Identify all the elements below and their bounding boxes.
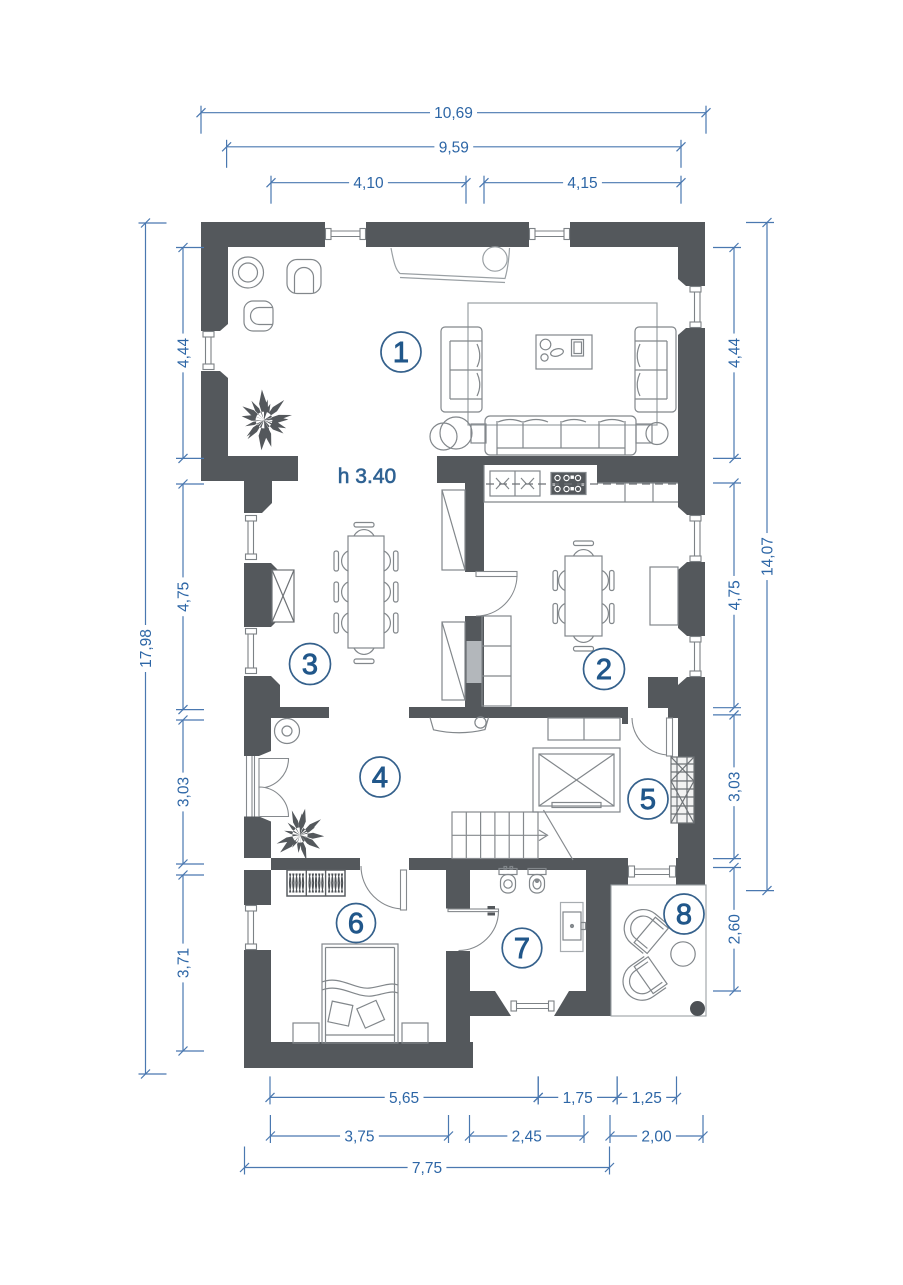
svg-text:5,65: 5,65 bbox=[389, 1090, 419, 1107]
svg-text:3,75: 3,75 bbox=[344, 1129, 374, 1146]
svg-text:4: 4 bbox=[372, 762, 388, 794]
svg-text:3,71: 3,71 bbox=[176, 948, 193, 978]
svg-text:5: 5 bbox=[640, 784, 656, 816]
svg-text:3,03: 3,03 bbox=[176, 777, 193, 807]
svg-text:h 3.40: h 3.40 bbox=[338, 465, 396, 488]
svg-text:1,25: 1,25 bbox=[632, 1090, 662, 1107]
svg-text:4,10: 4,10 bbox=[353, 175, 384, 192]
svg-text:2,00: 2,00 bbox=[641, 1129, 672, 1146]
svg-text:3,03: 3,03 bbox=[727, 772, 744, 802]
svg-text:6: 6 bbox=[348, 908, 364, 940]
svg-text:4,75: 4,75 bbox=[727, 580, 744, 610]
svg-text:4,15: 4,15 bbox=[567, 175, 597, 192]
svg-text:4,44: 4,44 bbox=[727, 337, 744, 368]
svg-text:2: 2 bbox=[596, 654, 612, 686]
svg-text:1,75: 1,75 bbox=[563, 1090, 593, 1107]
svg-text:17,98: 17,98 bbox=[138, 629, 155, 668]
svg-text:14,07: 14,07 bbox=[760, 537, 777, 576]
svg-text:4,75: 4,75 bbox=[176, 582, 193, 612]
svg-text:8: 8 bbox=[676, 899, 692, 931]
svg-text:9,59: 9,59 bbox=[439, 139, 469, 156]
svg-text:7,75: 7,75 bbox=[412, 1160, 442, 1177]
svg-text:10,69: 10,69 bbox=[434, 105, 473, 122]
svg-text:2,45: 2,45 bbox=[512, 1129, 542, 1146]
svg-text:1: 1 bbox=[393, 337, 409, 369]
svg-text:2,60: 2,60 bbox=[727, 914, 744, 945]
svg-text:4,44: 4,44 bbox=[176, 337, 193, 368]
svg-text:3: 3 bbox=[302, 649, 318, 681]
svg-text:7: 7 bbox=[514, 933, 530, 965]
